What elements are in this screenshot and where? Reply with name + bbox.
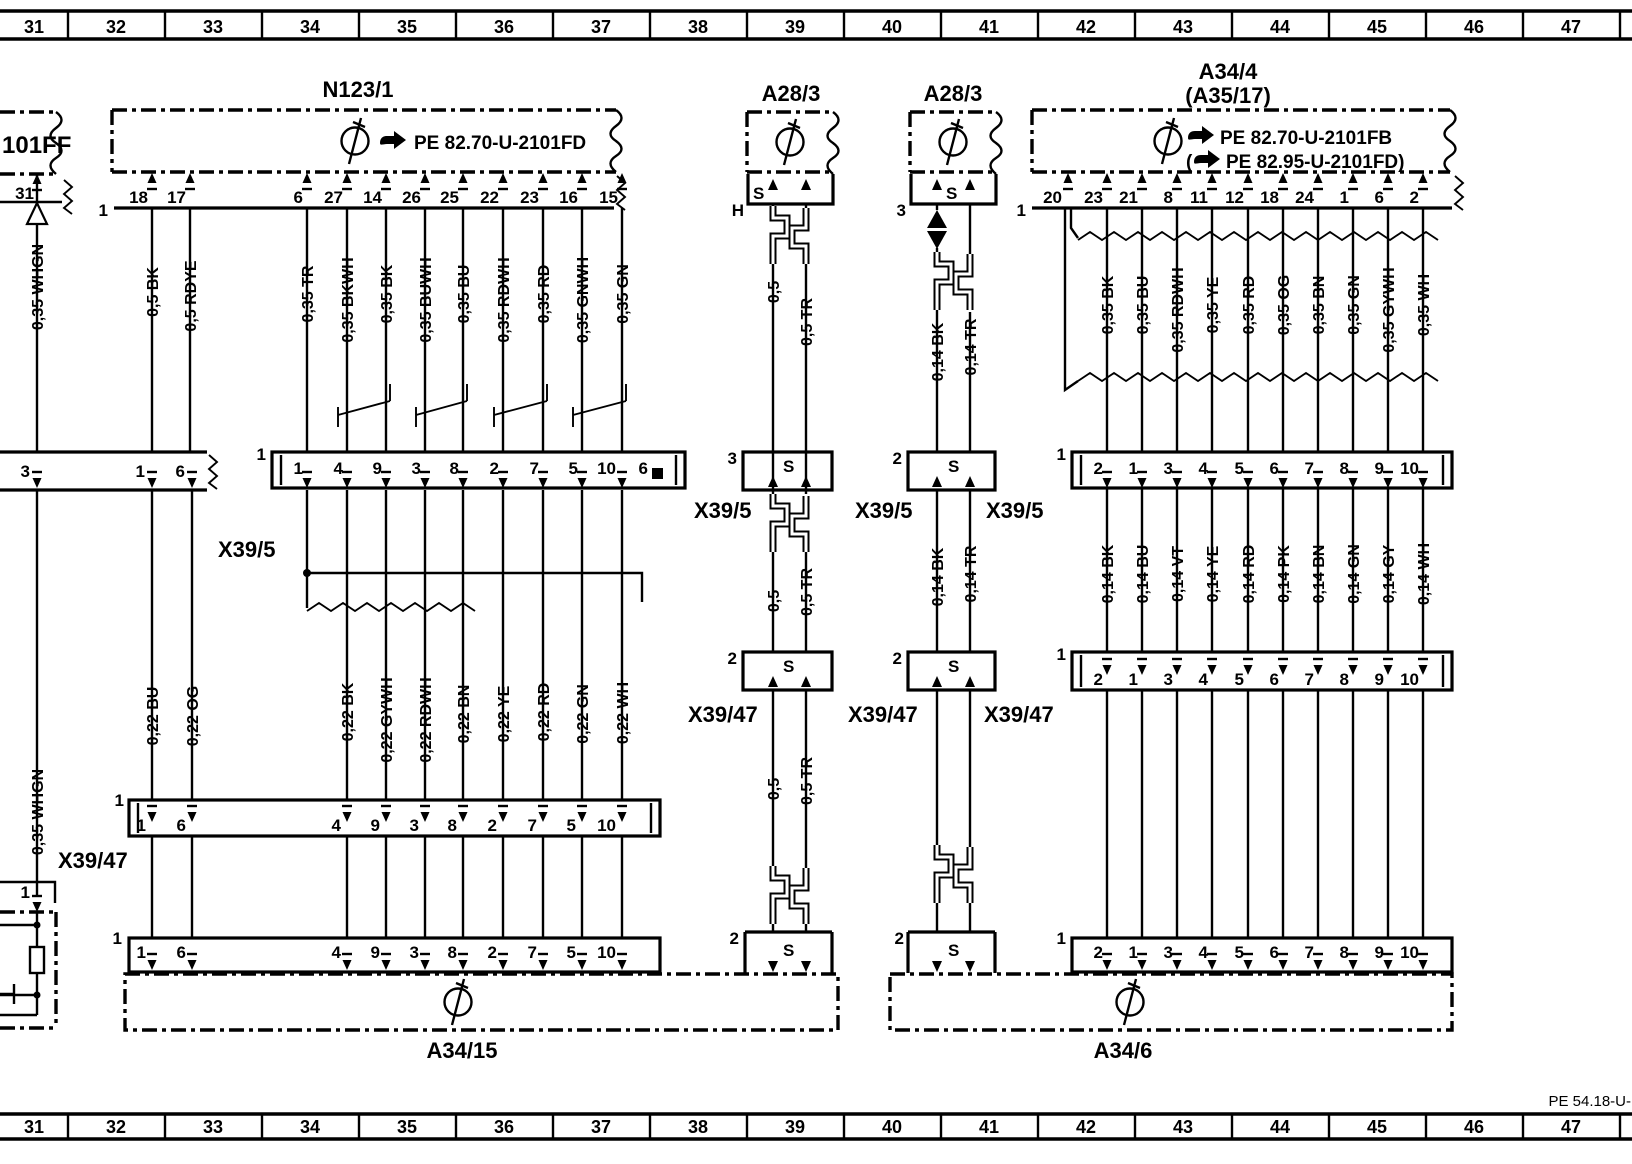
pin-label: 15 bbox=[599, 188, 618, 207]
ruler-cell: 40 bbox=[882, 17, 902, 37]
wire-label: 0,35 GYWH bbox=[1381, 267, 1398, 352]
wire-label: 0,35 WHGN bbox=[30, 244, 47, 330]
wire-label: 0,35 BKWH bbox=[340, 257, 357, 342]
wire-label: 0,35 BU bbox=[1135, 276, 1152, 335]
pin-label: 6 bbox=[1270, 459, 1279, 478]
ruler-cell: 33 bbox=[203, 17, 223, 37]
row-label: 1 bbox=[115, 791, 124, 810]
ruler-cell: 34 bbox=[300, 1117, 320, 1137]
s-pin-label: S bbox=[948, 657, 959, 676]
wire-label: 0,35 RD bbox=[1241, 276, 1258, 335]
component-title: A28/3 bbox=[762, 81, 821, 106]
s-pin-label: S bbox=[946, 184, 957, 203]
junction-dot bbox=[34, 992, 41, 999]
pin-label: 8 bbox=[448, 943, 457, 962]
pin-label: 3 bbox=[21, 462, 30, 481]
pin-label: 23 bbox=[520, 188, 539, 207]
pin-label: 2 bbox=[1094, 670, 1103, 689]
pin-label: 1 bbox=[1129, 459, 1138, 478]
pin-label: 6 bbox=[1375, 188, 1384, 207]
h-label: H bbox=[732, 201, 744, 220]
ruler-cell: 45 bbox=[1367, 17, 1387, 37]
wire-label: 0,5 bbox=[766, 590, 783, 612]
ruler-cell: 37 bbox=[591, 1117, 611, 1137]
pin-label: 5 bbox=[567, 816, 576, 835]
wire-label: 0,35 GN bbox=[1346, 275, 1363, 335]
ruler-cell: 33 bbox=[203, 1117, 223, 1137]
pin-label: 4 bbox=[1199, 943, 1209, 962]
ruler-cell: 41 bbox=[979, 17, 999, 37]
wire-label: 0,35 BK bbox=[1100, 275, 1117, 334]
wire-label: 0,14 GN bbox=[1346, 544, 1363, 604]
s-pin-label: S bbox=[948, 457, 959, 476]
ruler-cell: 46 bbox=[1464, 17, 1484, 37]
wire-label: 0,35 BN bbox=[1311, 276, 1328, 335]
pin-label: 5 bbox=[569, 459, 578, 478]
pin-label: 9 bbox=[373, 459, 382, 478]
ruler-cell: 39 bbox=[785, 17, 805, 37]
wire-label: 0,5 BK bbox=[145, 267, 162, 317]
wire-label: 0,35 RDWH bbox=[1170, 267, 1187, 352]
ruler-cell: 43 bbox=[1173, 1117, 1193, 1137]
s-pin-label: S bbox=[753, 184, 764, 203]
ruler-cell: 34 bbox=[300, 17, 320, 37]
pin-label: 1 bbox=[136, 462, 145, 481]
pin-label: 1 bbox=[1129, 670, 1138, 689]
pin-label: 2 bbox=[1094, 943, 1103, 962]
pin-label: 22 bbox=[480, 188, 499, 207]
wire-label: 0,14 GY bbox=[1381, 544, 1398, 603]
pin-6-terminal bbox=[652, 468, 663, 479]
pin-label: 24 bbox=[1295, 188, 1314, 207]
wire-label: 0,22 BK bbox=[340, 682, 357, 741]
ruler-cell: 47 bbox=[1561, 17, 1581, 37]
pin-label: 8 bbox=[450, 459, 459, 478]
pin-label: 7 bbox=[530, 459, 539, 478]
row-label: 3 bbox=[897, 201, 906, 220]
pin-label: 1 bbox=[1340, 188, 1349, 207]
connector-label: X39/5 bbox=[218, 537, 276, 562]
pin-label: 8 bbox=[1340, 943, 1349, 962]
wire-label: 0,35 GN bbox=[615, 264, 632, 324]
pin-label: 3 bbox=[1164, 943, 1173, 962]
pin-label: 5 bbox=[1235, 459, 1244, 478]
reference-code: PE 82.95-U-2101FD) bbox=[1226, 152, 1404, 173]
pin-label: 6 bbox=[1270, 943, 1279, 962]
wire-label: 0,5 RDYE bbox=[183, 260, 200, 331]
pin-label: 17 bbox=[167, 188, 186, 207]
wire-label: 0,5 bbox=[766, 778, 783, 800]
pin-label: 5 bbox=[1235, 943, 1244, 962]
row-label: 2 bbox=[730, 929, 739, 948]
pin-label: 10 bbox=[1400, 670, 1419, 689]
wire-label: 0,22 OG bbox=[185, 686, 202, 746]
wire-label: 0,5 TR bbox=[799, 757, 816, 805]
ruler-cell: 31 bbox=[24, 1117, 44, 1137]
pin-label: 21 bbox=[1119, 188, 1138, 207]
pin-label: 2 bbox=[490, 459, 499, 478]
wire-label: 0,14 TR bbox=[963, 318, 980, 375]
pin-label: 26 bbox=[402, 188, 421, 207]
pin-label: 12 bbox=[1225, 188, 1244, 207]
pin-label: 3 bbox=[410, 816, 419, 835]
row-label: 1 bbox=[1057, 645, 1066, 664]
pin-label: 6 bbox=[294, 188, 303, 207]
pin-label: 20 bbox=[1043, 188, 1062, 207]
wire-label: 0,35 GNWH bbox=[575, 257, 592, 343]
pin-label: 3 bbox=[410, 943, 419, 962]
resistor-symbol bbox=[30, 947, 44, 973]
pin-label: 10 bbox=[1400, 943, 1419, 962]
reference-code: PE 82.70-U-2101FB bbox=[1220, 128, 1392, 149]
wire-label: 0,14 BK bbox=[930, 322, 947, 381]
wire-label: 0,14 PK bbox=[1276, 545, 1293, 603]
component-title: A28/3 bbox=[924, 81, 983, 106]
pin-label: 6 bbox=[1270, 670, 1279, 689]
wiring-diagram-page: 31 32 33 34 35 36 37 38 39 40 41 42 43 4… bbox=[0, 0, 1632, 1164]
component-title: A34/4 bbox=[1199, 59, 1258, 84]
pin-label: 4 bbox=[1199, 459, 1209, 478]
pin-label: 1 bbox=[1129, 943, 1138, 962]
pin-label: 8 bbox=[1340, 459, 1349, 478]
pin-label: 6 bbox=[177, 943, 186, 962]
row-label: 1 bbox=[257, 445, 266, 464]
pin-label: 4 bbox=[334, 459, 344, 478]
ruler-cell: 40 bbox=[882, 1117, 902, 1137]
ruler-cell: 35 bbox=[397, 17, 417, 37]
pin-label: 7 bbox=[528, 943, 537, 962]
row-label: 2 bbox=[728, 649, 737, 668]
pin-label: 7 bbox=[1305, 670, 1314, 689]
row-label: 1 bbox=[1057, 929, 1066, 948]
ruler-cell: 38 bbox=[688, 1117, 708, 1137]
pin-label: 1 bbox=[294, 459, 303, 478]
row-label: 2 bbox=[893, 649, 902, 668]
junction-dot bbox=[34, 922, 41, 929]
wire-label: 0,14 RD bbox=[1241, 545, 1258, 604]
pin-label: 6 bbox=[177, 816, 186, 835]
component-title: N123/1 bbox=[323, 77, 394, 102]
component-subtitle: (A35/17) bbox=[1185, 83, 1271, 108]
wire-label: 0,22 RD bbox=[536, 683, 553, 742]
pin-label: 2 bbox=[1094, 459, 1103, 478]
wire-label: 0,14 TR bbox=[963, 545, 980, 602]
pin-label: 23 bbox=[1084, 188, 1103, 207]
pin-label: 3 bbox=[412, 459, 421, 478]
row-label: 2 bbox=[893, 449, 902, 468]
wire-label: 0,14 BK bbox=[1100, 544, 1117, 603]
wire-label: 0,5 TR bbox=[799, 298, 816, 346]
wire-label: 0,35 OG bbox=[1276, 275, 1293, 335]
pin-label: 6 bbox=[639, 459, 648, 478]
connector-label: X39/47 bbox=[984, 702, 1054, 727]
pin-label: 3 bbox=[1164, 459, 1173, 478]
wire-label: 0,35 BK bbox=[379, 264, 396, 323]
pin-label: 5 bbox=[567, 943, 576, 962]
wire-label: 0,22 GYWH bbox=[379, 677, 396, 762]
ruler-cell: 35 bbox=[397, 1117, 417, 1137]
wire-label: 0,5 TR bbox=[799, 568, 816, 616]
pin-label: 10 bbox=[597, 943, 616, 962]
wire-label: 0,22 BU bbox=[145, 687, 162, 746]
wire-label: 0,14 BK bbox=[930, 547, 947, 606]
wire-label: 0,14 WH bbox=[1416, 543, 1433, 605]
pin-label: 2 bbox=[488, 943, 497, 962]
pin-label: 4 bbox=[1199, 670, 1209, 689]
wire-label: 0,14 VT bbox=[1170, 546, 1187, 602]
pin-label: 4 bbox=[332, 943, 342, 962]
row-label: 1 bbox=[1057, 445, 1066, 464]
wire-label: 0,5 bbox=[766, 281, 783, 303]
pin-label: 25 bbox=[440, 188, 459, 207]
wire-label: 0,22 BN bbox=[456, 685, 473, 744]
pin-label: 8 bbox=[1164, 188, 1173, 207]
wire-label: 0,14 BN bbox=[1311, 545, 1328, 604]
ruler-cell: 31 bbox=[24, 17, 44, 37]
pin-label: 9 bbox=[1375, 459, 1384, 478]
s-pin-label: S bbox=[783, 657, 794, 676]
row-label: 1 bbox=[99, 201, 108, 220]
pin-label: 14 bbox=[363, 188, 382, 207]
wire-label: 0,22 GN bbox=[575, 684, 592, 744]
ruler-cell: 45 bbox=[1367, 1117, 1387, 1137]
pin-label: 8 bbox=[1340, 670, 1349, 689]
pin-label: 8 bbox=[448, 816, 457, 835]
connector-label: X39/47 bbox=[848, 702, 918, 727]
pin-label: 2 bbox=[1410, 188, 1419, 207]
pin-label: 9 bbox=[371, 816, 380, 835]
connector-label: X39/5 bbox=[694, 498, 752, 523]
pin-label: 9 bbox=[1375, 670, 1384, 689]
pin-label: 1 bbox=[137, 943, 146, 962]
pin-label: 10 bbox=[1400, 459, 1419, 478]
component-label: A34/6 bbox=[1094, 1038, 1153, 1063]
s-pin-label: S bbox=[783, 457, 794, 476]
pin-label: 2 bbox=[488, 816, 497, 835]
pin-label: 9 bbox=[1375, 943, 1384, 962]
ruler-cell: 43 bbox=[1173, 17, 1193, 37]
row-label: 1 bbox=[1017, 201, 1026, 220]
pin-label: 18 bbox=[129, 188, 148, 207]
wire-label: 0,22 YE bbox=[496, 685, 513, 742]
connector-label: X39/5 bbox=[986, 498, 1044, 523]
ruler-cell: 32 bbox=[106, 1117, 126, 1137]
component-label: A34/15 bbox=[427, 1038, 498, 1063]
pin-label: 7 bbox=[1305, 943, 1314, 962]
wire-label: 0,35 RD bbox=[536, 265, 553, 324]
ruler-cell: 42 bbox=[1076, 17, 1096, 37]
pin-label: 31 bbox=[15, 184, 34, 203]
ruler-cell: 46 bbox=[1464, 1117, 1484, 1137]
pin-label: 7 bbox=[528, 816, 537, 835]
ruler-cell: 36 bbox=[494, 17, 514, 37]
ruler-cell: 44 bbox=[1270, 17, 1290, 37]
pin-label: 16 bbox=[559, 188, 578, 207]
pin-label: 1 bbox=[137, 816, 146, 835]
pin-label: 7 bbox=[1305, 459, 1314, 478]
ruler-cell: 39 bbox=[785, 1117, 805, 1137]
wire-label: 0,22 WH bbox=[615, 682, 632, 744]
wire-label: 0,14 YE bbox=[1205, 545, 1222, 602]
wire-label: 0,35 BUWH bbox=[418, 257, 435, 342]
ruler-cell: 36 bbox=[494, 1117, 514, 1137]
wire-label: 0,35 WHGN bbox=[30, 769, 47, 855]
pin-label: 4 bbox=[332, 816, 342, 835]
ruler-cell: 42 bbox=[1076, 1117, 1096, 1137]
component-ref: 101FF bbox=[2, 132, 71, 159]
pin-label: 27 bbox=[324, 188, 343, 207]
ruler-cell: 44 bbox=[1270, 1117, 1290, 1137]
pin-label: 10 bbox=[597, 816, 616, 835]
wire-label: 0,35 WH bbox=[1416, 274, 1433, 336]
ruler-cell: 37 bbox=[591, 17, 611, 37]
wire-label: 0,22 RDWH bbox=[418, 677, 435, 762]
pin-label: 5 bbox=[1235, 670, 1244, 689]
wire-label: 0,35 BU bbox=[456, 265, 473, 324]
wire-label: 0,35 RDWH bbox=[496, 257, 513, 342]
row-label: 3 bbox=[728, 449, 737, 468]
pin-label: 10 bbox=[597, 459, 616, 478]
wire-label: 0,35 YE bbox=[1205, 276, 1222, 333]
pin-label: 3 bbox=[1164, 670, 1173, 689]
pin-label: 1 bbox=[21, 883, 30, 902]
connector-label: X39/47 bbox=[688, 702, 758, 727]
ruler-cell: 32 bbox=[106, 17, 126, 37]
page-reference: PE 54.18-U- bbox=[1548, 1093, 1631, 1110]
s-pin-label: S bbox=[783, 941, 794, 960]
ruler-cell: 41 bbox=[979, 1117, 999, 1137]
ruler-cell: 47 bbox=[1561, 1117, 1581, 1137]
reference-code: PE 82.70-U-2101FD bbox=[414, 133, 586, 154]
ruler-cell: 38 bbox=[688, 17, 708, 37]
junction-dot bbox=[303, 569, 311, 577]
pin-label: 11 bbox=[1190, 188, 1208, 207]
wiring-diagram: 31 32 33 34 35 36 37 38 39 40 41 42 43 4… bbox=[0, 0, 1632, 1164]
pin-label: 9 bbox=[371, 943, 380, 962]
wire-label: 0,14 BU bbox=[1135, 545, 1152, 604]
pin-label: 18 bbox=[1260, 188, 1279, 207]
s-pin-label: S bbox=[948, 941, 959, 960]
wire-label: 0,35 TR bbox=[300, 265, 317, 322]
connector-label: X39/47 bbox=[58, 848, 128, 873]
paren-open: ( bbox=[1186, 152, 1193, 173]
pin-label: 6 bbox=[176, 462, 185, 481]
connector-label: X39/5 bbox=[855, 498, 913, 523]
row-label: 1 bbox=[113, 929, 122, 948]
row-label: 2 bbox=[895, 929, 904, 948]
